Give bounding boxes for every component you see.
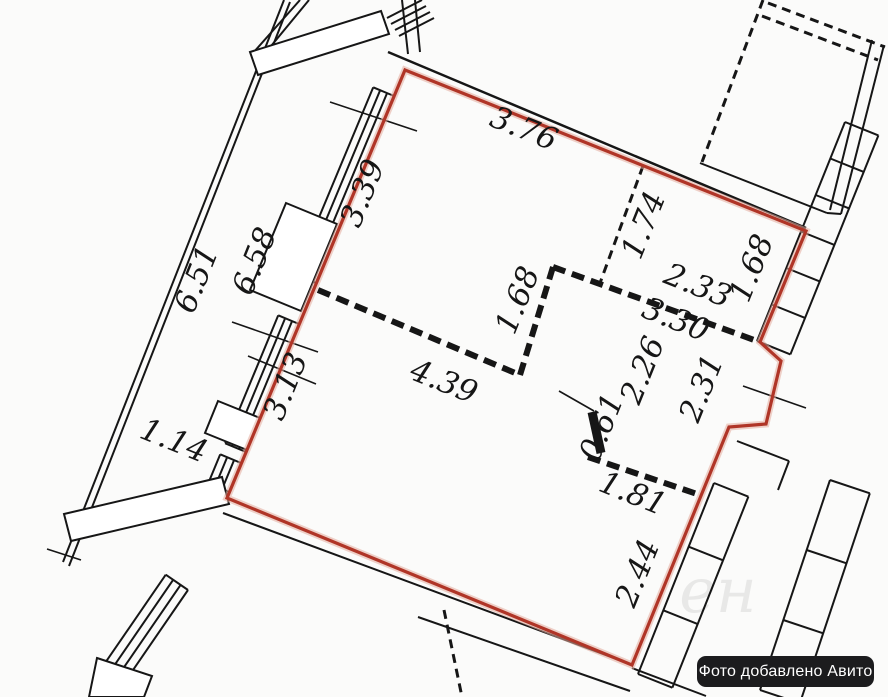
top-wall-outer-line — [388, 52, 806, 228]
dimension-label: 2.31 — [672, 350, 732, 428]
neighbor-balcony-top-left — [250, 0, 434, 75]
dimension-label: 1.74 — [614, 187, 673, 264]
avito-badge-label: Фото добавлено Авито — [699, 663, 873, 681]
dimension-label: 6.51 — [167, 241, 226, 318]
dimension-label: 1.68 — [488, 262, 547, 339]
neighbor-balcony-bottom-left — [64, 477, 229, 541]
dimension-label: 1.14 — [135, 411, 212, 470]
dimension-label: 1.68 — [722, 230, 781, 307]
neighbor-room-top-right — [700, 0, 885, 214]
watermark-text: ен — [679, 554, 757, 627]
floor-plan-drawing: ен 3.763.396.586.513.131.141.742.331.683… — [0, 0, 888, 697]
dimension-label: 4.39 — [404, 352, 482, 412]
floor-plan-photo: ен 3.763.396.586.513.131.141.742.331.683… — [0, 0, 888, 697]
dimension-label: 3.39 — [333, 155, 392, 232]
avito-photo-badge: Фото добавлено Авито — [697, 656, 874, 687]
dimension-label: 0.61 — [572, 389, 631, 466]
